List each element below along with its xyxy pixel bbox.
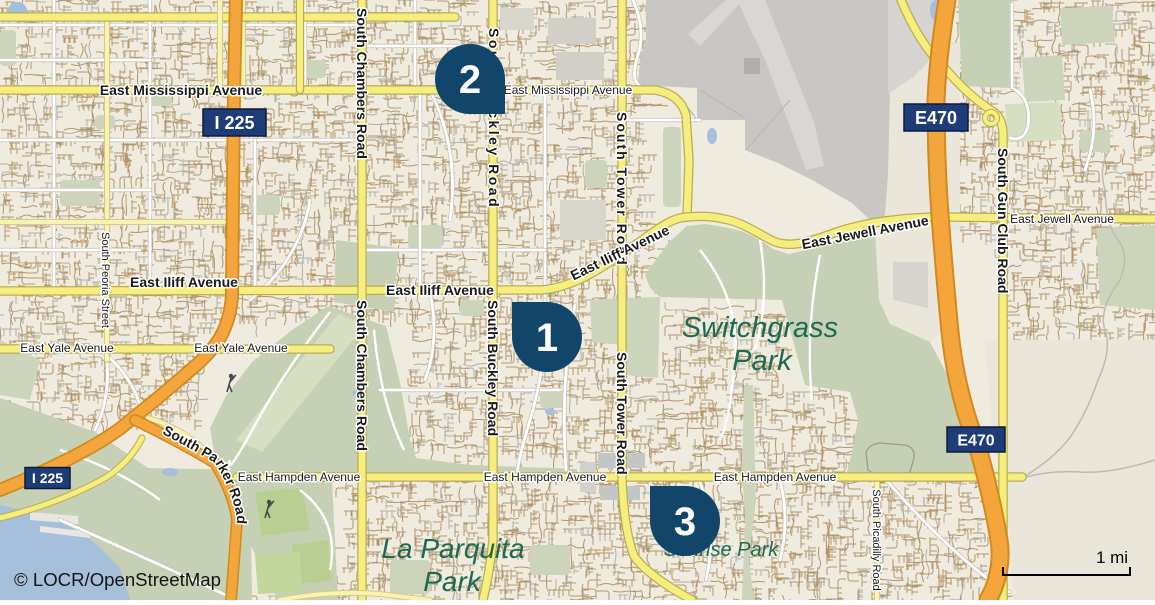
svg-text:Park: Park	[423, 566, 483, 597]
svg-text:South Gun Club Road: South Gun Club Road	[995, 148, 1011, 293]
svg-text:© LOCR/OpenStreetMap: © LOCR/OpenStreetMap	[14, 569, 221, 590]
svg-text:East Jewell Avenue: East Jewell Avenue	[1010, 212, 1114, 226]
svg-text:South Tower Road: South Tower Road	[614, 352, 630, 475]
svg-text:I 225: I 225	[214, 113, 254, 133]
svg-text:East Hampden Avenue: East Hampden Avenue	[714, 470, 837, 484]
svg-text:East Iliff Avenue: East Iliff Avenue	[386, 282, 494, 298]
svg-text:Switchgrass: Switchgrass	[682, 312, 838, 344]
svg-text:South Chambers Road: South Chambers Road	[354, 300, 370, 451]
svg-text:East Hampden Avenue: East Hampden Avenue	[484, 470, 607, 484]
svg-text:1 mi: 1 mi	[1096, 548, 1128, 567]
svg-text:3: 3	[674, 500, 696, 544]
svg-text:South Peoria Street: South Peoria Street	[99, 232, 111, 328]
svg-text:E470: E470	[915, 108, 957, 128]
svg-text:East Yale Avenue: East Yale Avenue	[194, 341, 288, 355]
svg-text:1: 1	[536, 316, 558, 360]
svg-text:East Hampden Avenue: East Hampden Avenue	[238, 470, 361, 484]
svg-text:East Mississippi Avenue: East Mississippi Avenue	[504, 83, 633, 97]
svg-text:2: 2	[459, 58, 481, 102]
svg-text:Park: Park	[732, 345, 793, 377]
svg-text:South Chambers Road: South Chambers Road	[354, 8, 370, 159]
svg-text:East Mississippi Avenue: East Mississippi Avenue	[100, 82, 263, 98]
svg-text:South Picadilly Road: South Picadilly Road	[870, 489, 882, 591]
svg-text:I 225: I 225	[32, 470, 63, 486]
svg-text:East Yale Avenue: East Yale Avenue	[20, 341, 114, 355]
svg-text:E470: E470	[957, 432, 994, 449]
svg-text:East Iliff Avenue: East Iliff Avenue	[130, 274, 238, 290]
svg-text:La Parquita: La Parquita	[381, 533, 524, 564]
svg-text:South Buckley Road: South Buckley Road	[485, 300, 501, 436]
